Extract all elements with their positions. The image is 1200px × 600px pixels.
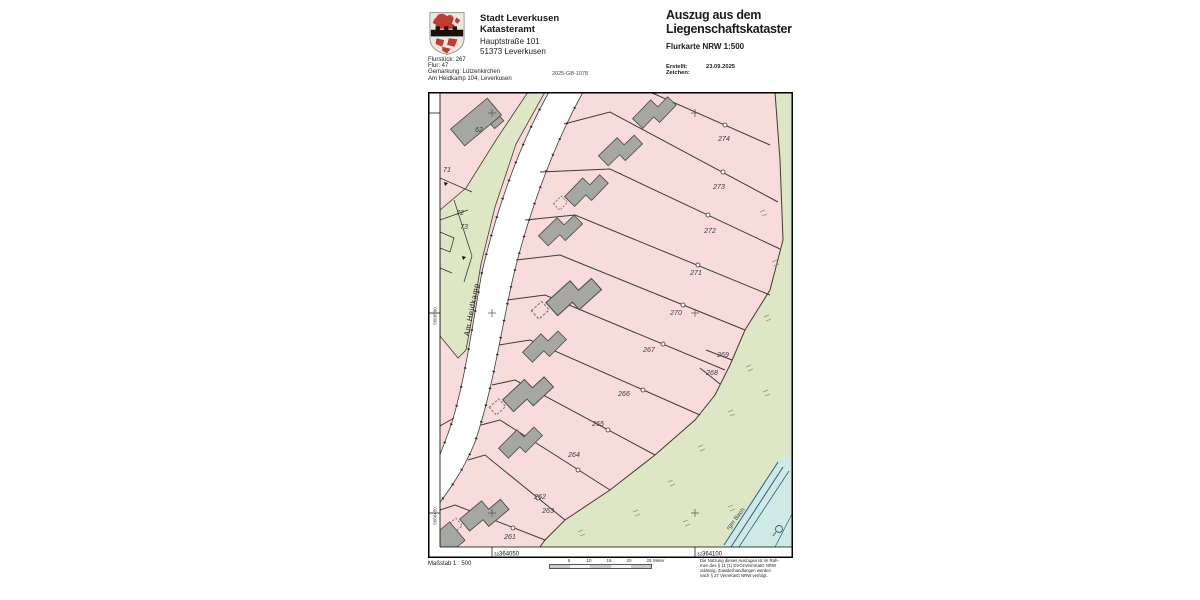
created-value: 23.09.2025 bbox=[706, 64, 735, 70]
parcel-273: 273 bbox=[712, 184, 725, 191]
scale-bar: 5 10 15 20 25 Meter bbox=[549, 558, 674, 572]
issuing-office: Stadt Leverkusen Katasteramt bbox=[480, 13, 559, 35]
title-line2: Liegenschaftskataster bbox=[666, 23, 792, 37]
scalebar-tick-10: 10 bbox=[586, 558, 591, 563]
legal-line-4: nach § 27 VermKatG NRW verfolgt. bbox=[700, 573, 796, 578]
cadastral-map: 62 71 72 73 274 273 272 271 270 269 268 … bbox=[428, 92, 793, 558]
org-name: Stadt Leverkusen bbox=[480, 13, 559, 24]
parcel-info-block: Flurstück: 267 Flur: 47 Gemarkung: Lütze… bbox=[428, 57, 512, 82]
document-meta: Erstellt: 23.09.2025 Zeichen: bbox=[666, 64, 690, 77]
cadastral-extract-page: { "header": { "logo_name": "leverkusen-c… bbox=[0, 0, 1200, 600]
parcel-269: 269 bbox=[716, 352, 729, 359]
parcel-261: 261 bbox=[503, 534, 516, 541]
parcel-274: 274 bbox=[717, 136, 730, 143]
scalebar-tick-20: 20 bbox=[626, 558, 631, 563]
scalebar-segments bbox=[549, 564, 652, 569]
scale-label: Maßstab 1 : 500 bbox=[428, 561, 471, 567]
org-department: Katasteramt bbox=[480, 24, 559, 35]
address-city: 51373 Leverkusen bbox=[480, 47, 546, 57]
parcel-271: 271 bbox=[689, 270, 702, 277]
leverkusen-coat-of-arms bbox=[428, 10, 466, 57]
parcel-266: 266 bbox=[617, 391, 630, 398]
parcel-71: 71 bbox=[443, 167, 451, 174]
parcel-272: 272 bbox=[703, 228, 716, 235]
title-line1: Auszug aus dem bbox=[666, 9, 792, 23]
parcel-62: 62 bbox=[475, 127, 483, 134]
parcel-73: 73 bbox=[460, 224, 468, 231]
document-title: Auszug aus dem Liegenschaftskataster bbox=[666, 9, 792, 36]
address-street: Hauptstraße 101 bbox=[480, 37, 546, 47]
office-address: Hauptstraße 101 51373 Leverkusen bbox=[480, 37, 546, 56]
parcel-270: 270 bbox=[669, 310, 682, 317]
info-gemarkung: Gemarkung: Lützenkirchen bbox=[428, 69, 512, 75]
document-number: 2025-GB-1078 bbox=[552, 71, 588, 77]
map-type-subtitle: Flurkarte NRW 1:500 bbox=[666, 42, 744, 51]
parcel-263: 263 bbox=[541, 508, 554, 515]
created-label: Erstellt: bbox=[666, 64, 688, 70]
scalebar-tick-25: 25 bbox=[646, 558, 651, 563]
parcel-72: 72 bbox=[456, 210, 464, 217]
created-row: Erstellt: 23.09.2025 bbox=[666, 64, 690, 70]
grid-y-label-top: 5666500 bbox=[433, 307, 438, 325]
legal-notice: Die Nutzung dieses Auszuges ist im Rah- … bbox=[700, 558, 796, 578]
parcel-265: 265 bbox=[591, 421, 604, 428]
info-address: Am Heidkamp 104, Leverkusen bbox=[428, 76, 512, 82]
scalebar-unit: Meter bbox=[653, 558, 665, 563]
grid-y-label-bottom: 5666450 bbox=[433, 507, 438, 525]
reference-label: Zeichen: bbox=[666, 70, 690, 76]
scalebar-tick-5: 5 bbox=[568, 558, 571, 563]
parcel-267: 267 bbox=[642, 347, 656, 354]
parcel-268: 268 bbox=[705, 370, 718, 377]
scalebar-tick-15: 15 bbox=[606, 558, 611, 563]
parcel-264: 264 bbox=[567, 452, 580, 459]
parcel-262: 262 bbox=[533, 494, 546, 501]
